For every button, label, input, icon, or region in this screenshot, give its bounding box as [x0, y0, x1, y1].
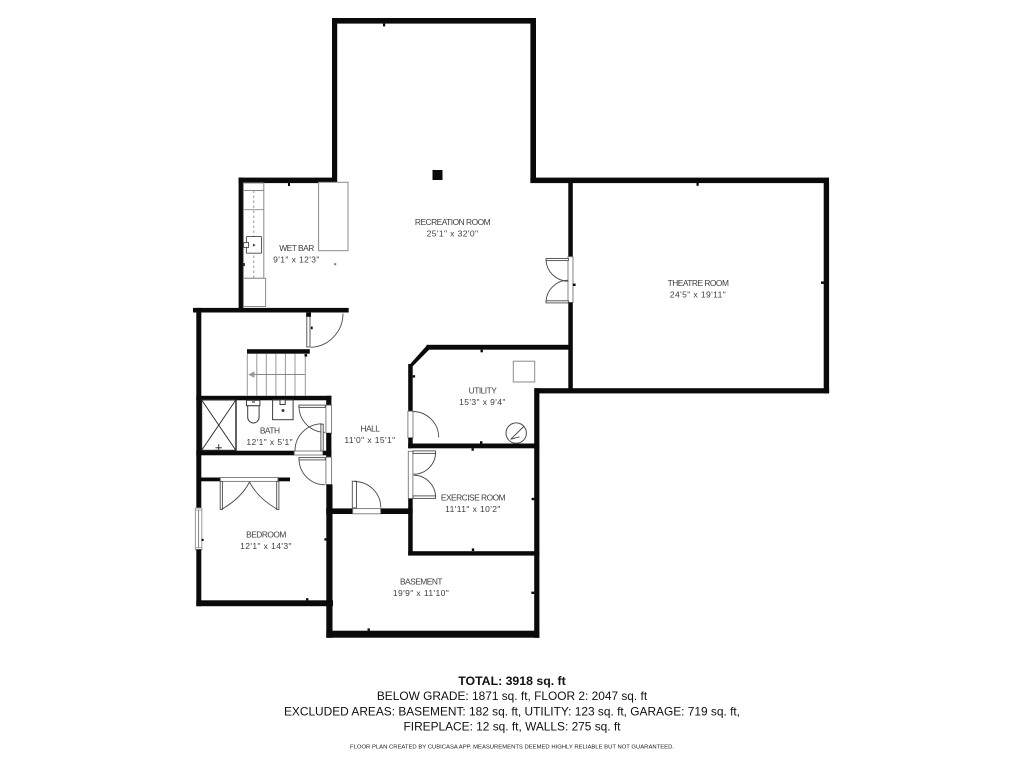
svg-text:12'1" x 5'1": 12'1" x 5'1" [246, 437, 293, 447]
svg-text:11'11" x 10'2": 11'11" x 10'2" [445, 504, 501, 514]
svg-text:24'5" x 19'11": 24'5" x 19'11" [670, 290, 726, 300]
svg-text:FLOOR PLAN CREATED BY CUBICASA: FLOOR PLAN CREATED BY CUBICASA APP. MEAS… [350, 745, 674, 751]
svg-text:FIREPLACE: 12 sq. ft, WALLS: 2: FIREPLACE: 12 sq. ft, WALLS: 275 sq. ft [404, 720, 622, 734]
svg-text:11'0" x 15'1": 11'0" x 15'1" [344, 435, 395, 445]
svg-text:BEDROOM: BEDROOM [246, 530, 286, 540]
svg-text:UTILITY: UTILITY [469, 386, 498, 396]
svg-text:EXERCISE ROOM: EXERCISE ROOM [441, 493, 506, 503]
svg-text:EXCLUDED AREAS: BASEMENT: 182: EXCLUDED AREAS: BASEMENT: 182 sq. ft, UT… [284, 705, 740, 719]
svg-text:HALL: HALL [361, 424, 381, 434]
svg-text:BELOW GRADE: 1871 sq. ft, FLOO: BELOW GRADE: 1871 sq. ft, FLOOR 2: 2047 … [377, 689, 648, 703]
svg-text:BASEMENT: BASEMENT [400, 577, 442, 587]
svg-text:BATH: BATH [260, 426, 280, 436]
svg-text:15'3" x 9'4": 15'3" x 9'4" [459, 397, 506, 407]
svg-text:19'9" x 11'10": 19'9" x 11'10" [393, 588, 449, 598]
svg-text:TOTAL: 3918 sq. ft: TOTAL: 3918 sq. ft [458, 674, 566, 688]
svg-text:RECREATION ROOM: RECREATION ROOM [415, 217, 491, 227]
svg-text:12'1" x 14'3": 12'1" x 14'3" [240, 541, 292, 551]
svg-text:WET BAR: WET BAR [279, 243, 314, 253]
svg-text:25'1" x 32'0": 25'1" x 32'0" [427, 229, 479, 239]
svg-text:THEATRE ROOM: THEATRE ROOM [668, 278, 729, 288]
svg-text:9'1" x 12'3": 9'1" x 12'3" [273, 255, 320, 265]
